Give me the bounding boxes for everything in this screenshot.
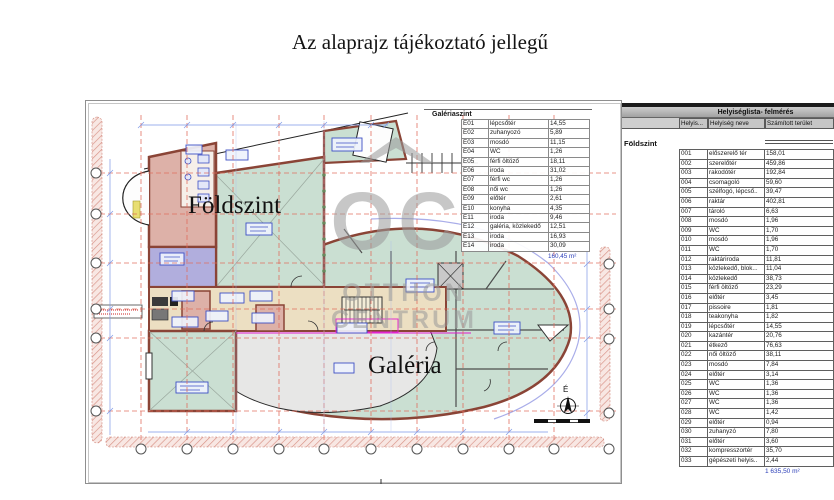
table-row: 015férfi öltöző23,29: [680, 284, 834, 294]
table-cell: E13: [462, 232, 489, 241]
table-cell: 027: [680, 399, 708, 409]
table-cell: mosdó: [708, 217, 765, 227]
table-row: 018teakonyha1,82: [680, 313, 834, 323]
table-cell: 1,36: [765, 380, 834, 390]
table-cell: 7,80: [765, 428, 834, 438]
table-cell: szerelőtér: [708, 159, 765, 169]
table-cell: 5,89: [549, 129, 590, 138]
gallery-label: Galéria: [368, 352, 442, 379]
table-cell: 1,96: [765, 217, 834, 227]
table-cell: 022: [680, 351, 708, 361]
table-cell: 002: [680, 159, 708, 169]
table-row: 031előtér3,60: [680, 437, 834, 447]
table-row: E09előtér2,61: [462, 195, 590, 204]
table-cell: 004: [680, 178, 708, 188]
table-row: 004csomagoló59,60: [680, 178, 834, 188]
table-cell: 1,82: [765, 313, 834, 323]
room-list-total: 1 635,50 m²: [765, 468, 834, 475]
table-cell: 459,86: [765, 159, 834, 169]
table-cell: pissoire: [708, 303, 765, 313]
table-cell: 029: [680, 418, 708, 428]
table-cell: lépcsőtér: [489, 120, 549, 129]
table-cell: 005: [680, 188, 708, 198]
table-cell: 1,36: [765, 399, 834, 409]
table-cell: 023: [680, 361, 708, 371]
table-row: E07férfi wc1,26: [462, 176, 590, 185]
table-cell: E06: [462, 167, 489, 176]
galeriaszint-rows: E01lépcsőtér14,55E02zuhanyozó5,89E03mosd…: [461, 119, 590, 252]
table-cell: 001: [680, 150, 708, 160]
watermark-line2: CENTRUM: [331, 306, 477, 334]
table-cell: előszerelő tér: [708, 150, 765, 160]
table-cell: előtér: [708, 418, 765, 428]
table-cell: iroda: [489, 214, 549, 223]
table-cell: 3,60: [765, 437, 834, 447]
table-cell: 026: [680, 389, 708, 399]
table-row: E05férfi öltöző18,11: [462, 157, 590, 166]
table-row: E04WC1,26: [462, 148, 590, 157]
table-cell: kazántér: [708, 332, 765, 342]
table-row: 007tároló6,63: [680, 207, 834, 217]
table-cell: raktár: [708, 197, 765, 207]
table-cell: férfi wc: [489, 176, 549, 185]
table-cell: E11: [462, 214, 489, 223]
table-cell: női öltöző: [708, 351, 765, 361]
galeriaszint-table: Galériaszint E01lépcsőtér14,55E02zuhanyo…: [424, 109, 592, 261]
table-cell: 158,01: [765, 150, 834, 160]
table-cell: 024: [680, 370, 708, 380]
table-cell: 20,76: [765, 332, 834, 342]
table-cell: 31,02: [549, 167, 590, 176]
table-cell: E03: [462, 138, 489, 147]
table-row: 019lépcsőtér14,55: [680, 322, 834, 332]
table-row: 001előszerelő tér158,01: [680, 150, 834, 160]
table-cell: csomagoló: [708, 178, 765, 188]
table-row: 029előtér0,94: [680, 418, 834, 428]
table-cell: rakodótér: [708, 169, 765, 179]
table-cell: 0,94: [765, 418, 834, 428]
table-cell: 3,14: [765, 370, 834, 380]
table-cell: mosdó: [489, 138, 549, 147]
table-cell: 14,55: [549, 120, 590, 129]
table-row: E06iroda31,02: [462, 167, 590, 176]
table-cell: 1,26: [549, 176, 590, 185]
table-row: 032kompresszortér35,70: [680, 447, 834, 457]
table-cell: E10: [462, 204, 489, 213]
table-row: 022női öltöző38,11: [680, 351, 834, 361]
note-box: [94, 305, 142, 318]
table-row: 028WC1,42: [680, 409, 834, 419]
north-label: É: [563, 385, 568, 394]
table-cell: 9,46: [549, 214, 590, 223]
table-cell: E05: [462, 157, 489, 166]
table-cell: 033: [680, 457, 708, 467]
table-cell: E07: [462, 176, 489, 185]
yellow-marker: [133, 201, 140, 218]
scale-bar: [534, 419, 590, 423]
table-cell: 18,11: [549, 157, 590, 166]
table-row: 020kazántér20,76: [680, 332, 834, 342]
table-cell: E04: [462, 148, 489, 157]
table-cell: E01: [462, 120, 489, 129]
table-cell: 017: [680, 303, 708, 313]
table-row: 030zuhanyzó7,80: [680, 428, 834, 438]
table-cell: közlekedő, blok...: [708, 265, 765, 275]
table-cell: előtér: [708, 293, 765, 303]
table-cell: WC: [489, 148, 549, 157]
room-list-rows: 001előszerelő tér158,01002szerelőtér459,…: [679, 149, 834, 467]
table-cell: 018: [680, 313, 708, 323]
col-header-area: Számított terület: [765, 118, 834, 129]
table-cell: 11,04: [765, 265, 834, 275]
page: Az alaprajz tájékoztató jellegű: [0, 0, 834, 500]
table-row: 011WC1,70: [680, 245, 834, 255]
table-cell: 008: [680, 217, 708, 227]
table-cell: 6,63: [765, 207, 834, 217]
north-arrow: É: [557, 385, 579, 414]
table-row: E12galéria, közlekedő12,51: [462, 223, 590, 232]
table-row: 003rakodótér192,84: [680, 169, 834, 179]
table-cell: 1,42: [765, 409, 834, 419]
table-cell: zuhanyozó: [489, 129, 549, 138]
table-cell: E02: [462, 129, 489, 138]
table-cell: 007: [680, 207, 708, 217]
table-cell: 015: [680, 284, 708, 294]
table-row: 016előtér3,45: [680, 293, 834, 303]
table-row: 009WC1,70: [680, 226, 834, 236]
table-cell: 35,70: [765, 447, 834, 457]
table-cell: 12,51: [549, 223, 590, 232]
table-cell: szélfogó, lépcső..: [708, 188, 765, 198]
table-cell: WC: [708, 399, 765, 409]
table-cell: 59,60: [765, 178, 834, 188]
table-cell: kompresszortér: [708, 447, 765, 457]
table-cell: teakonyha: [708, 313, 765, 323]
room-list-table-wrap: 001előszerelő tér158,01002szerelőtér459,…: [679, 149, 834, 475]
table-cell: 7,84: [765, 361, 834, 371]
table-cell: 1,26: [549, 148, 590, 157]
table-cell: 38,73: [765, 274, 834, 284]
table-cell: raktáriroda: [708, 255, 765, 265]
table-cell: WC: [708, 409, 765, 419]
table-cell: lépcsőtér: [708, 322, 765, 332]
table-cell: 39,47: [765, 188, 834, 198]
table-cell: 16,93: [549, 232, 590, 241]
table-cell: WC: [708, 380, 765, 390]
table-cell: 028: [680, 409, 708, 419]
table-cell: férfi öltöző: [708, 284, 765, 294]
table-cell: 010: [680, 236, 708, 246]
watermark-line1: OTTHON: [342, 279, 466, 307]
table-cell: női wc: [489, 185, 549, 194]
table-cell: iroda: [489, 167, 549, 176]
double-rule: [765, 140, 833, 144]
galeriaszint-title: Galériaszint: [432, 111, 592, 118]
table-row: E02zuhanyozó5,89: [462, 129, 590, 138]
page-title: Az alaprajz tájékoztató jellegű: [190, 30, 650, 55]
table-cell: 11,15: [549, 138, 590, 147]
table-cell: 020: [680, 332, 708, 342]
table-row: E03mosdó11,15: [462, 138, 590, 147]
table-cell: előtér: [489, 195, 549, 204]
table-cell: 402,81: [765, 197, 834, 207]
room-list-panel: Helyiséglista- felmérés Helyis... Helyis…: [622, 103, 834, 500]
table-cell: férfi öltöző: [489, 157, 549, 166]
table-cell: 4,35: [549, 204, 590, 213]
table-cell: 76,63: [765, 341, 834, 351]
table-row: 014közlekedő38,73: [680, 274, 834, 284]
table-cell: 38,11: [765, 351, 834, 361]
table-cell: 3,45: [765, 293, 834, 303]
table-cell: 011: [680, 245, 708, 255]
table-cell: 1,96: [765, 236, 834, 246]
table-cell: 012: [680, 255, 708, 265]
table-row: E11iroda9,46: [462, 214, 590, 223]
table-cell: 006: [680, 197, 708, 207]
table-cell: mosdó: [708, 236, 765, 246]
table-row: 008mosdó1,96: [680, 217, 834, 227]
table-cell: E14: [462, 242, 489, 251]
table-cell: előtér: [708, 370, 765, 380]
table-cell: 032: [680, 447, 708, 457]
table-cell: 013: [680, 265, 708, 275]
table-cell: 031: [680, 437, 708, 447]
col-header-name: Helyiség neve: [708, 118, 765, 129]
table-cell: 025: [680, 380, 708, 390]
table-row: 025WC1,36: [680, 380, 834, 390]
floor-label: Földszint: [188, 192, 281, 219]
table-cell: 009: [680, 226, 708, 236]
table-cell: 014: [680, 274, 708, 284]
floor-plan-panel: OC OTTHON CENTRUM Földszint Galéria É: [85, 100, 622, 484]
table-row: 023mosdó7,84: [680, 361, 834, 371]
table-cell: 003: [680, 169, 708, 179]
table-cell: 30,09: [549, 242, 590, 251]
table-cell: 1,81: [765, 303, 834, 313]
table-cell: konyha: [489, 204, 549, 213]
table-row: 027WC1,36: [680, 399, 834, 409]
table-cell: 1,70: [765, 226, 834, 236]
galeriaszint-total: 160,45 m²: [548, 252, 592, 261]
table-row: 012raktáriroda11,81: [680, 255, 834, 265]
table-row: E01lépcsőtér14,55: [462, 120, 590, 129]
table-cell: E09: [462, 195, 489, 204]
table-cell: 2,61: [549, 195, 590, 204]
table-cell: mosdó: [708, 361, 765, 371]
table-cell: 1,26: [549, 185, 590, 194]
section-label: Földszint: [624, 139, 657, 148]
table-cell: 2,44: [765, 457, 834, 467]
table-row: 006raktár402,81: [680, 197, 834, 207]
table-row: 013közlekedő, blok...11,04: [680, 265, 834, 275]
table-cell: 11,81: [765, 255, 834, 265]
table-cell: 1,70: [765, 245, 834, 255]
table-cell: 030: [680, 428, 708, 438]
col-header-number: Helyis...: [679, 118, 708, 129]
table-cell: WC: [708, 389, 765, 399]
table-cell: 019: [680, 322, 708, 332]
table-cell: E08: [462, 185, 489, 194]
table-cell: közlekedő: [708, 274, 765, 284]
table-row: 033gépészeti helyis..2,44: [680, 457, 834, 467]
table-cell: zuhanyzó: [708, 428, 765, 438]
table-row: 005szélfogó, lépcső..39,47: [680, 188, 834, 198]
table-cell: 016: [680, 293, 708, 303]
table-cell: étkező: [708, 341, 765, 351]
table-row: 010mosdó1,96: [680, 236, 834, 246]
left-door: [146, 353, 152, 379]
table-cell: tároló: [708, 207, 765, 217]
table-cell: 021: [680, 341, 708, 351]
table-row: E14iroda30,09: [462, 242, 590, 251]
table-row: E08női wc1,26: [462, 185, 590, 194]
table-cell: WC: [708, 245, 765, 255]
table-row: E10konyha4,35: [462, 204, 590, 213]
table-cell: galéria, közlekedő: [489, 223, 549, 232]
table-cell: 192,84: [765, 169, 834, 179]
table-cell: WC: [708, 226, 765, 236]
table-cell: 14,55: [765, 322, 834, 332]
table-cell: iroda: [489, 232, 549, 241]
table-row: E13iroda16,93: [462, 232, 590, 241]
header-spacer: [622, 118, 679, 129]
room-list-header: Helyis... Helyiség neve Számított terüle…: [622, 118, 834, 129]
table-row: 017pissoire1,81: [680, 303, 834, 313]
table-cell: E12: [462, 223, 489, 232]
table-cell: 23,29: [765, 284, 834, 294]
table-cell: 1,36: [765, 389, 834, 399]
table-row: 021étkező76,63: [680, 341, 834, 351]
table-row: 002szerelőtér459,86: [680, 159, 834, 169]
table-row: 024előtér3,14: [680, 370, 834, 380]
room-list-title: Helyiséglista- felmérés: [622, 107, 834, 118]
table-cell: előtér: [708, 437, 765, 447]
table-cell: iroda: [489, 242, 549, 251]
table-cell: gépészeti helyis..: [708, 457, 765, 467]
table-row: 026WC1,36: [680, 389, 834, 399]
